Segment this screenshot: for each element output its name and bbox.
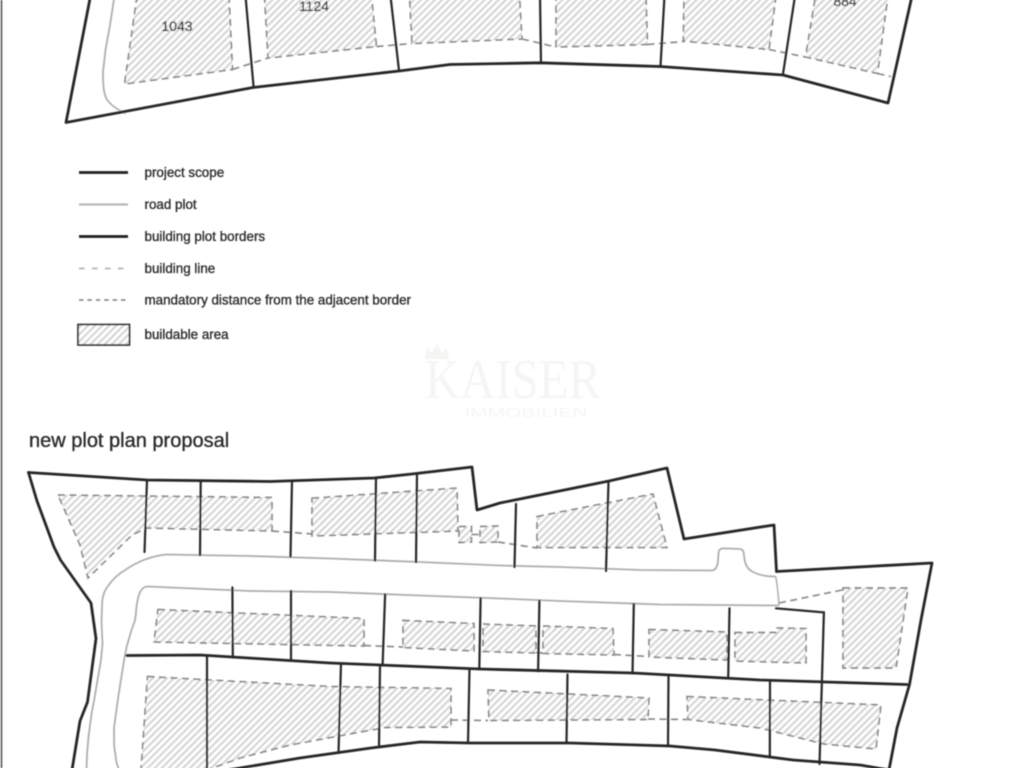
svg-text:1124: 1124 [299,0,329,14]
svg-text:project scope: project scope [145,165,225,180]
svg-text:building plot borders: building plot borders [145,229,266,244]
svg-text:new plot plan proposal: new plot plan proposal [29,430,229,452]
svg-text:building line: building line [145,261,216,276]
svg-text:mandatory distance from the ad: mandatory distance from the adjacent bor… [145,293,412,308]
svg-text:buildable area: buildable area [145,327,230,342]
svg-text:IMMOBILIEN: IMMOBILIEN [465,406,588,420]
svg-text:road plot: road plot [145,197,197,212]
svg-text:KAISER: KAISER [425,349,602,411]
svg-text:1043: 1043 [161,18,192,34]
svg-text:884: 884 [833,0,857,9]
